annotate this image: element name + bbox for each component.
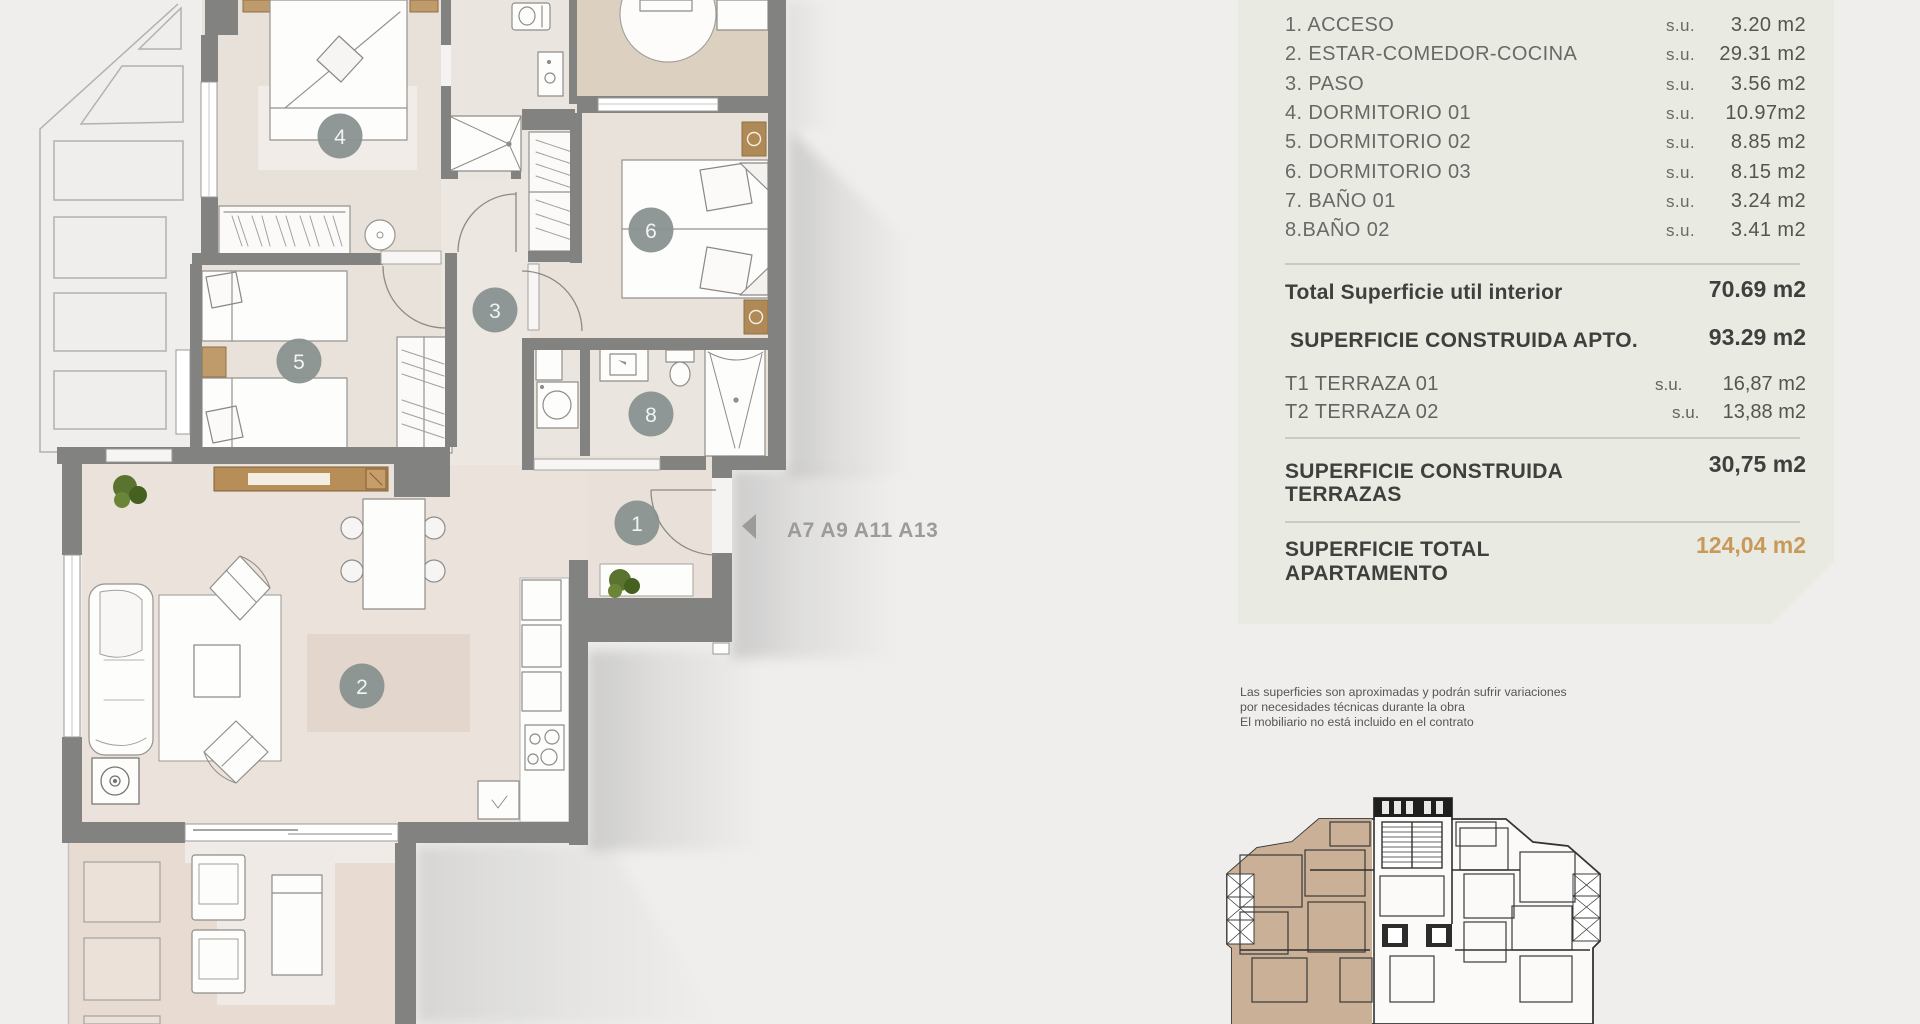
svg-text:8.85 m2: 8.85 m2 xyxy=(1731,131,1806,153)
svg-text:70.69 m2: 70.69 m2 xyxy=(1709,276,1806,302)
svg-text:8: 8 xyxy=(645,404,657,427)
svg-text:3.24 m2: 3.24 m2 xyxy=(1731,190,1806,212)
svg-text:T1 TERRAZA 01: T1 TERRAZA 01 xyxy=(1285,373,1439,395)
svg-text:3.20 m2: 3.20 m2 xyxy=(1731,14,1806,36)
svg-text:4. DORMITORIO 01: 4. DORMITORIO 01 xyxy=(1285,102,1471,124)
svg-text:s.u.: s.u. xyxy=(1666,221,1695,240)
svg-text:29.31 m2: 29.31 m2 xyxy=(1719,43,1806,65)
svg-text:T2 TERRAZA 02: T2 TERRAZA 02 xyxy=(1285,401,1439,423)
svg-text:Las superficies son aproximada: Las superficies son aproximadas y podrán… xyxy=(1240,685,1567,699)
svg-text:10.97m2: 10.97m2 xyxy=(1725,102,1806,124)
svg-text:8.15 m2: 8.15 m2 xyxy=(1731,161,1806,183)
svg-text:A7 A9 A11 A13: A7 A9 A11 A13 xyxy=(787,519,938,542)
svg-text:3.41 m2: 3.41 m2 xyxy=(1731,219,1806,241)
svg-text:3: 3 xyxy=(489,300,501,323)
svg-text:8.BAÑO 02: 8.BAÑO 02 xyxy=(1285,217,1390,241)
svg-text:30,75 m2: 30,75 m2 xyxy=(1709,451,1806,477)
svg-text:1. ACCESO: 1. ACCESO xyxy=(1285,14,1394,36)
svg-text:El mobiliario no está incluido: El mobiliario no está incluido en el con… xyxy=(1240,715,1474,729)
svg-text:s.u.: s.u. xyxy=(1672,403,1699,422)
svg-text:2. ESTAR-COMEDOR-COCINA: 2. ESTAR-COMEDOR-COCINA xyxy=(1285,43,1577,65)
svg-text:s.u.: s.u. xyxy=(1655,375,1682,394)
svg-text:s.u.: s.u. xyxy=(1666,192,1695,211)
svg-text:3. PASO: 3. PASO xyxy=(1285,73,1364,95)
svg-text:3.56 m2: 3.56 m2 xyxy=(1731,73,1806,95)
svg-text:TERRAZAS: TERRAZAS xyxy=(1285,483,1402,506)
svg-text:s.u.: s.u. xyxy=(1666,133,1695,152)
svg-text:6. DORMITORIO 03: 6. DORMITORIO 03 xyxy=(1285,161,1471,183)
svg-text:s.u.: s.u. xyxy=(1666,45,1695,64)
svg-text:por necesidades técnicas duran: por necesidades técnicas durante la obra xyxy=(1240,700,1465,714)
svg-text:s.u.: s.u. xyxy=(1666,16,1695,35)
svg-text:2: 2 xyxy=(356,676,368,699)
svg-text:APARTAMENTO: APARTAMENTO xyxy=(1285,562,1448,585)
svg-text:13,88 m2: 13,88 m2 xyxy=(1723,401,1806,423)
svg-text:s.u.: s.u. xyxy=(1666,104,1695,123)
svg-text:SUPERFICIE CONSTRUIDA: SUPERFICIE CONSTRUIDA xyxy=(1285,460,1563,483)
svg-text:5. DORMITORIO 02: 5. DORMITORIO 02 xyxy=(1285,131,1471,153)
svg-text:Total Superficie util interior: Total Superficie util interior xyxy=(1285,281,1562,304)
svg-text:7. BAÑO 01: 7. BAÑO 01 xyxy=(1285,188,1396,212)
svg-text:s.u.: s.u. xyxy=(1666,163,1695,182)
svg-text:93.29 m2: 93.29 m2 xyxy=(1709,324,1806,350)
svg-text:6: 6 xyxy=(645,220,657,243)
svg-text:5: 5 xyxy=(293,351,305,374)
svg-text:16,87 m2: 16,87 m2 xyxy=(1723,373,1806,395)
svg-text:124,04 m2: 124,04 m2 xyxy=(1696,532,1806,558)
svg-text:1: 1 xyxy=(631,513,643,536)
svg-text:SUPERFICIE CONSTRUIDA APTO.: SUPERFICIE CONSTRUIDA APTO. xyxy=(1290,329,1638,352)
svg-text:4: 4 xyxy=(334,126,346,149)
svg-text:s.u.: s.u. xyxy=(1666,75,1695,94)
svg-text:SUPERFICIE TOTAL: SUPERFICIE TOTAL xyxy=(1285,538,1490,561)
